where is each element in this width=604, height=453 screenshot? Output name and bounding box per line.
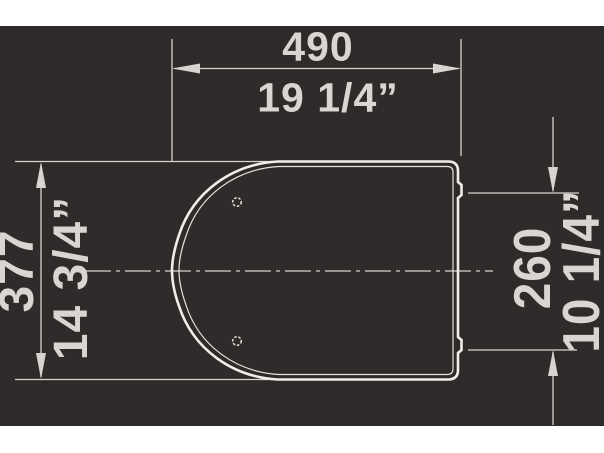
arrow-width-right-icon	[433, 64, 461, 74]
dimension-drawing: 490 19 1/4” 377 14 3/4” 260 10 1/4”	[0, 0, 604, 453]
arrow-depth-up-icon	[36, 162, 46, 188]
hinge-hole-top	[233, 198, 242, 207]
label-hinge-mm: 260	[507, 227, 559, 310]
hinge-hole-bottom	[233, 337, 242, 346]
label-width-mm: 490	[282, 27, 353, 68]
dimension-lines	[41, 69, 553, 426]
label-hinge-inch: 10 1/4”	[556, 189, 604, 352]
label-depth-mm: 377	[0, 229, 42, 312]
label-depth-inch: 14 3/4”	[48, 196, 96, 360]
arrow-width-left-icon	[172, 64, 200, 74]
arrow-hinge-up-icon	[548, 350, 558, 376]
label-width-inch: 19 1/4”	[257, 78, 399, 119]
